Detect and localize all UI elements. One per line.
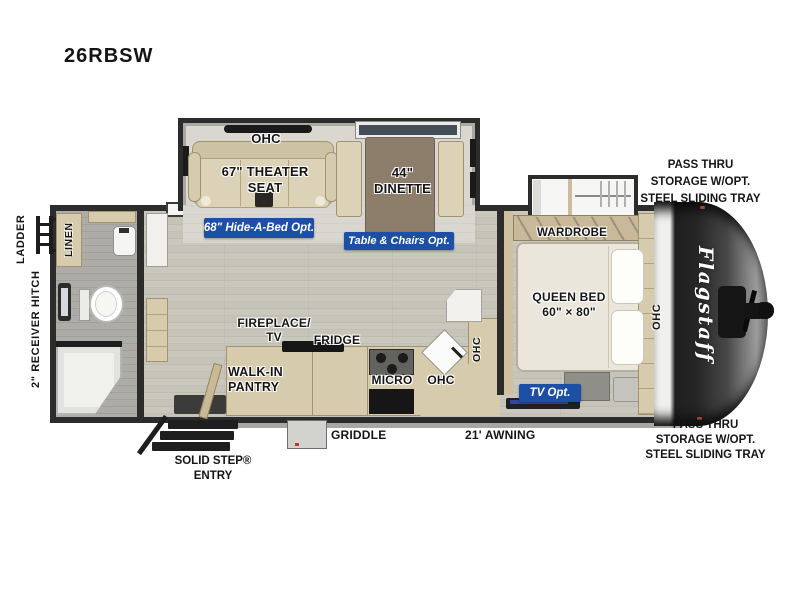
- brand-logo: Flagstaff: [692, 246, 718, 391]
- bathroom-wall: [137, 211, 144, 417]
- pass-thru-bottom-annotation: PASS THRU STORAGE W/OPT. STEEL SLIDING T…: [603, 418, 800, 463]
- bath-overhead-cabinet: [88, 211, 136, 223]
- tv-option-badge: TV Opt.: [519, 384, 581, 402]
- bath-faucet: [119, 228, 129, 233]
- solid-step-line2: ENTRY: [148, 469, 278, 484]
- dinette-label-line2: DINETTE: [345, 182, 460, 197]
- queen-bed-label-line2: 60" × 80": [518, 306, 620, 320]
- dinette-skylight: [356, 122, 460, 138]
- pantry-label-line2: PANTRY: [228, 380, 318, 394]
- ohc-kitchen-label: OHC: [403, 374, 479, 388]
- toilet-seat: [95, 291, 117, 317]
- galley-drawer-cabinet: [146, 298, 168, 362]
- dinette-label-line1: 44": [345, 166, 460, 181]
- ohc-bedroom-label: OHC: [650, 296, 664, 338]
- step-2: [160, 431, 234, 440]
- solid-step-annotation: SOLID STEP® ENTRY: [148, 454, 278, 484]
- shower-towel-bar: [56, 341, 122, 347]
- floorplan-canvas: 26RBSW Flagstaff OHC 67" THEATER SEAT 44…: [0, 0, 800, 600]
- theater-foot-left: [201, 196, 211, 206]
- dinette-window-2: [470, 172, 476, 198]
- stove-cooktop: [369, 349, 414, 375]
- griddle-knob: [295, 443, 299, 446]
- solid-step-line1: SOLID STEP®: [148, 454, 278, 469]
- galley-upper-cabinet: [146, 213, 168, 267]
- ohc-lounge-label: OHC: [206, 132, 326, 147]
- theater-label-line2: SEAT: [200, 181, 330, 196]
- hitch-coupler: [758, 302, 774, 319]
- theater-label-line1: 67" THEATER: [200, 165, 330, 180]
- receiver-hitch-annotation: 2" RECEIVER HITCH: [28, 264, 44, 394]
- griddle-annotation: GRIDDLE: [331, 429, 401, 443]
- queen-bed-label-line1: QUEEN BED: [518, 291, 620, 305]
- step-1: [168, 420, 238, 429]
- wardrobe-side-shade: [533, 180, 541, 216]
- oven-unit: [369, 389, 414, 414]
- pass-thru-bottom-line2: STORAGE W/OPT.: [603, 433, 800, 448]
- fridge-label: FRIDGE: [277, 334, 397, 348]
- dinette-window-1: [470, 139, 476, 167]
- bath-window-glass: [61, 288, 68, 316]
- ladder-rung-3: [38, 243, 52, 246]
- ohc-corner-label: OHC: [470, 328, 484, 370]
- pass-thru-top-line2: STORAGE W/OPT.: [598, 174, 800, 191]
- griddle-box: [287, 420, 327, 449]
- bedroom-wall-trim: [504, 211, 513, 395]
- pass-thru-top-line3: STEEL SLIDING TRAY: [598, 191, 800, 208]
- wardrobe-label: WARDROBE: [513, 227, 631, 240]
- pass-thru-bottom-line3: STEEL SLIDING TRAY: [603, 448, 800, 463]
- step-3: [152, 442, 230, 451]
- ladder-icon: [36, 216, 58, 254]
- pass-thru-top-line1: PASS THRU: [598, 157, 800, 174]
- bedroom-wall: [497, 211, 504, 395]
- hide-a-bed-option-badge: 68" Hide-A-Bed Opt.: [204, 218, 314, 238]
- page-title: 26RBSW: [64, 45, 153, 68]
- pass-thru-bottom-line1: PASS THRU: [603, 418, 800, 433]
- fireplace-label-line1: FIREPLACE/: [213, 317, 335, 331]
- pantry-label-line1: WALK-IN: [228, 365, 318, 379]
- awning-annotation: 21' AWNING: [465, 429, 565, 443]
- table-chairs-option-badge: Table & Chairs Opt.: [344, 232, 454, 250]
- theater-foot-right: [315, 196, 325, 206]
- ladder-rung-1: [38, 223, 52, 226]
- pass-thru-top-annotation: PASS THRU STORAGE W/OPT. STEEL SLIDING T…: [598, 157, 800, 208]
- wardrobe-divider: [568, 179, 572, 216]
- linen-label: LINEN: [58, 214, 80, 266]
- ladder-rung-2: [38, 233, 52, 236]
- ladder-annotation: LADDER: [13, 211, 29, 267]
- entry-steps: [146, 412, 238, 458]
